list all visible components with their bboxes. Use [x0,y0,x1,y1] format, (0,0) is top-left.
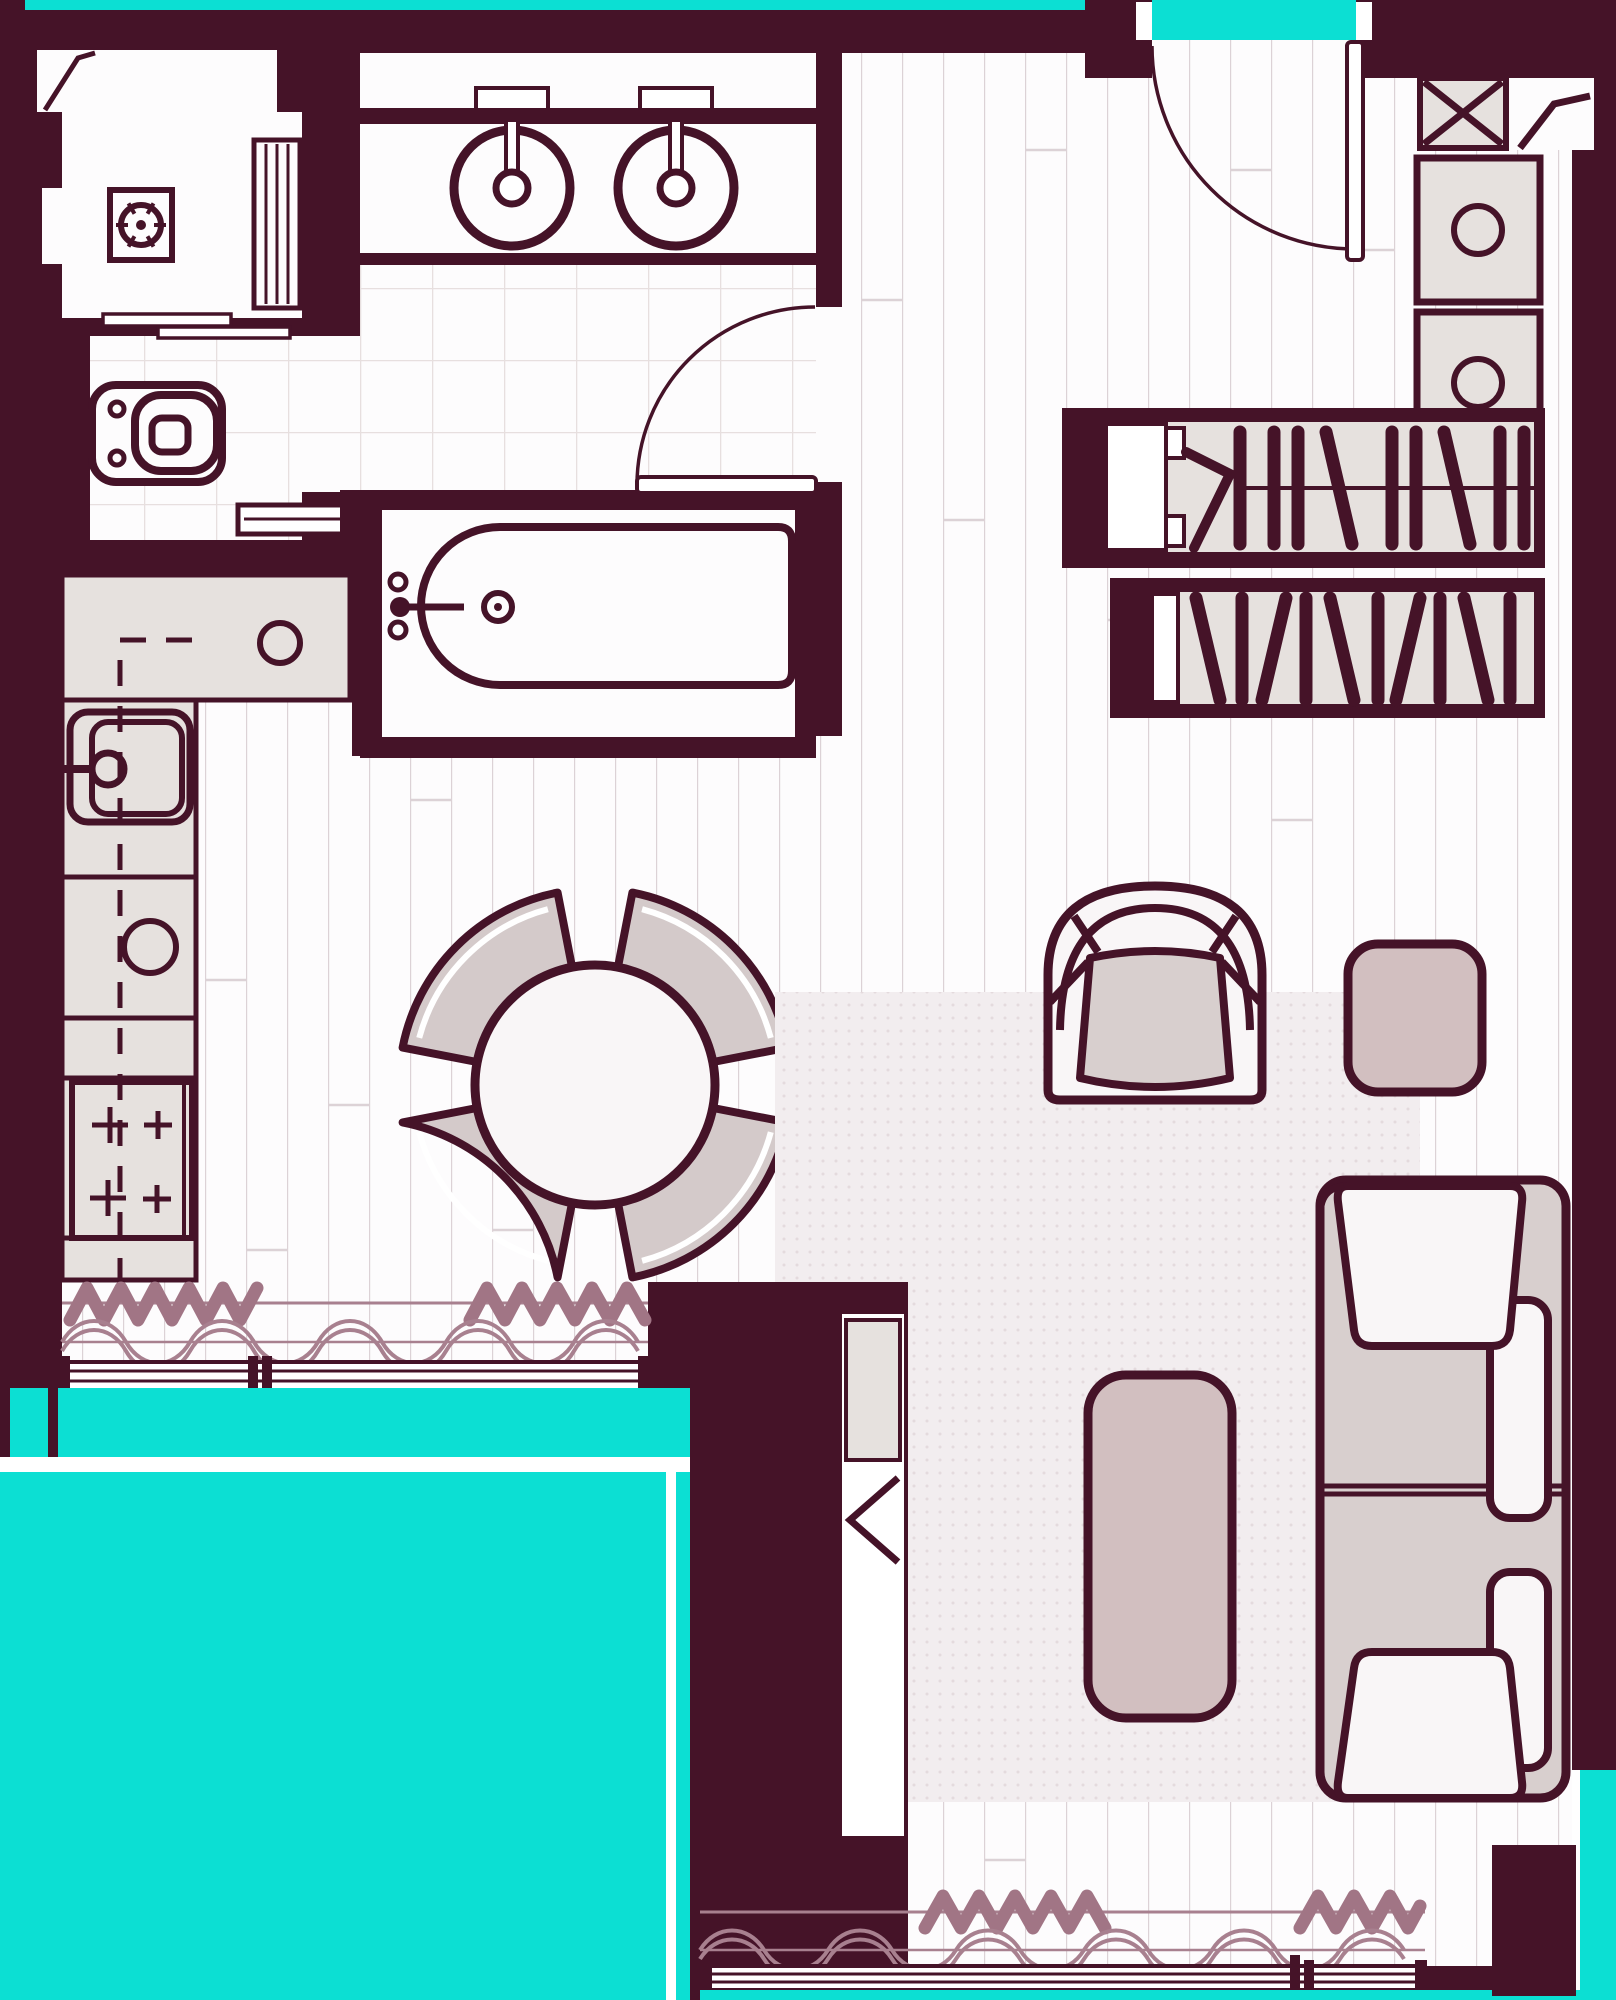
floor-dining-left [195,698,352,1460]
ventilation-shaft [1420,78,1506,148]
wall-bathroom-south [25,540,378,576]
vanity-shelf-2 [640,88,712,110]
coffee-table [1088,1375,1232,1718]
exterior-right [1580,1770,1616,1990]
tub-basin [421,527,792,685]
balcony-door-panel [846,1320,900,1460]
vanity-shelf-1 [476,88,548,110]
toilet [92,385,222,482]
frame-connector [700,1960,712,1994]
exterior-strip-bottom [700,1990,1616,2000]
entrance-door-leaf [1347,42,1363,260]
balcony-edge-line [666,1472,676,2000]
wardrobe [1062,408,1545,718]
wardrobe-door-panel [1152,594,1178,702]
wall-entrance-right [1356,0,1616,78]
vanity-back-edge [360,108,816,124]
top-facade-strip [25,0,1085,10]
sliding-door-panel-2 [158,327,290,338]
balcony-parapet [0,1457,690,1472]
tub-tap-cold [390,622,406,638]
bathtub [360,490,816,758]
entrance-jamb-left [1136,2,1152,40]
wall-laundry-vanity-divider [302,10,360,336]
floor-plan-canvas [0,0,1616,2000]
corner-pocket [1512,78,1594,150]
tub-tap-hot [390,574,406,590]
vanity-counter [360,124,816,255]
floor-plan-drawing [0,0,1616,2000]
balcony-deck [0,1388,690,2000]
entrance-opening [1152,0,1356,40]
wall-hall-stub [800,680,842,736]
armchair [1048,886,1262,1100]
balcony-divider [48,1388,58,1457]
faucet-head [496,172,528,204]
faucet-head [660,172,692,204]
sofa-pillow-bottom [1338,1652,1523,1798]
laundry-closet [37,10,360,338]
vanity-back-strip [360,53,816,108]
side-pouf [1348,944,1482,1092]
wardrobe-door-panel [1106,424,1166,550]
wardrobe-unit-lower [1110,578,1545,718]
wall-niche [42,188,64,264]
entrance-jamb-right [1356,2,1372,40]
bathroom-door-leaf [637,477,816,493]
vanity-counter-front-edge [360,253,816,265]
bathroom-door-opening [816,307,842,482]
frame-connector [1290,1955,1300,1994]
wall-return-block [1492,1845,1576,1996]
floor-bathroom [302,262,816,492]
bathroom-vanity [360,53,816,265]
counter-top-run [62,575,350,700]
sofa [1320,1180,1566,1798]
cooktop [72,1082,192,1238]
armchair-seat [1080,951,1230,1087]
frame-connector [1415,1960,1427,1994]
wardrobe-unit-upper [1062,408,1545,568]
balcony [0,1388,690,2000]
sofa-pillow-top [1338,1186,1523,1346]
sliding-door-panel-1 [103,314,231,326]
dining-table [475,965,715,1205]
frame-connector [1304,1960,1314,1994]
floor-entrance-threshold [1152,40,1356,78]
duct-strip [37,50,277,112]
cabinet-upper [1417,158,1540,302]
washing-machine [110,190,172,260]
